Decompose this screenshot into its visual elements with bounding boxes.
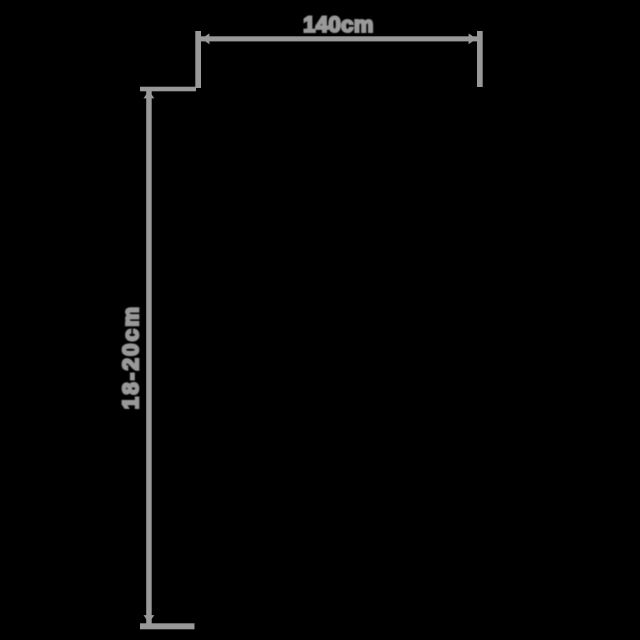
svg-text:18-20cm: 18-20cm bbox=[118, 305, 143, 410]
svg-text:140cm: 140cm bbox=[303, 12, 374, 37]
